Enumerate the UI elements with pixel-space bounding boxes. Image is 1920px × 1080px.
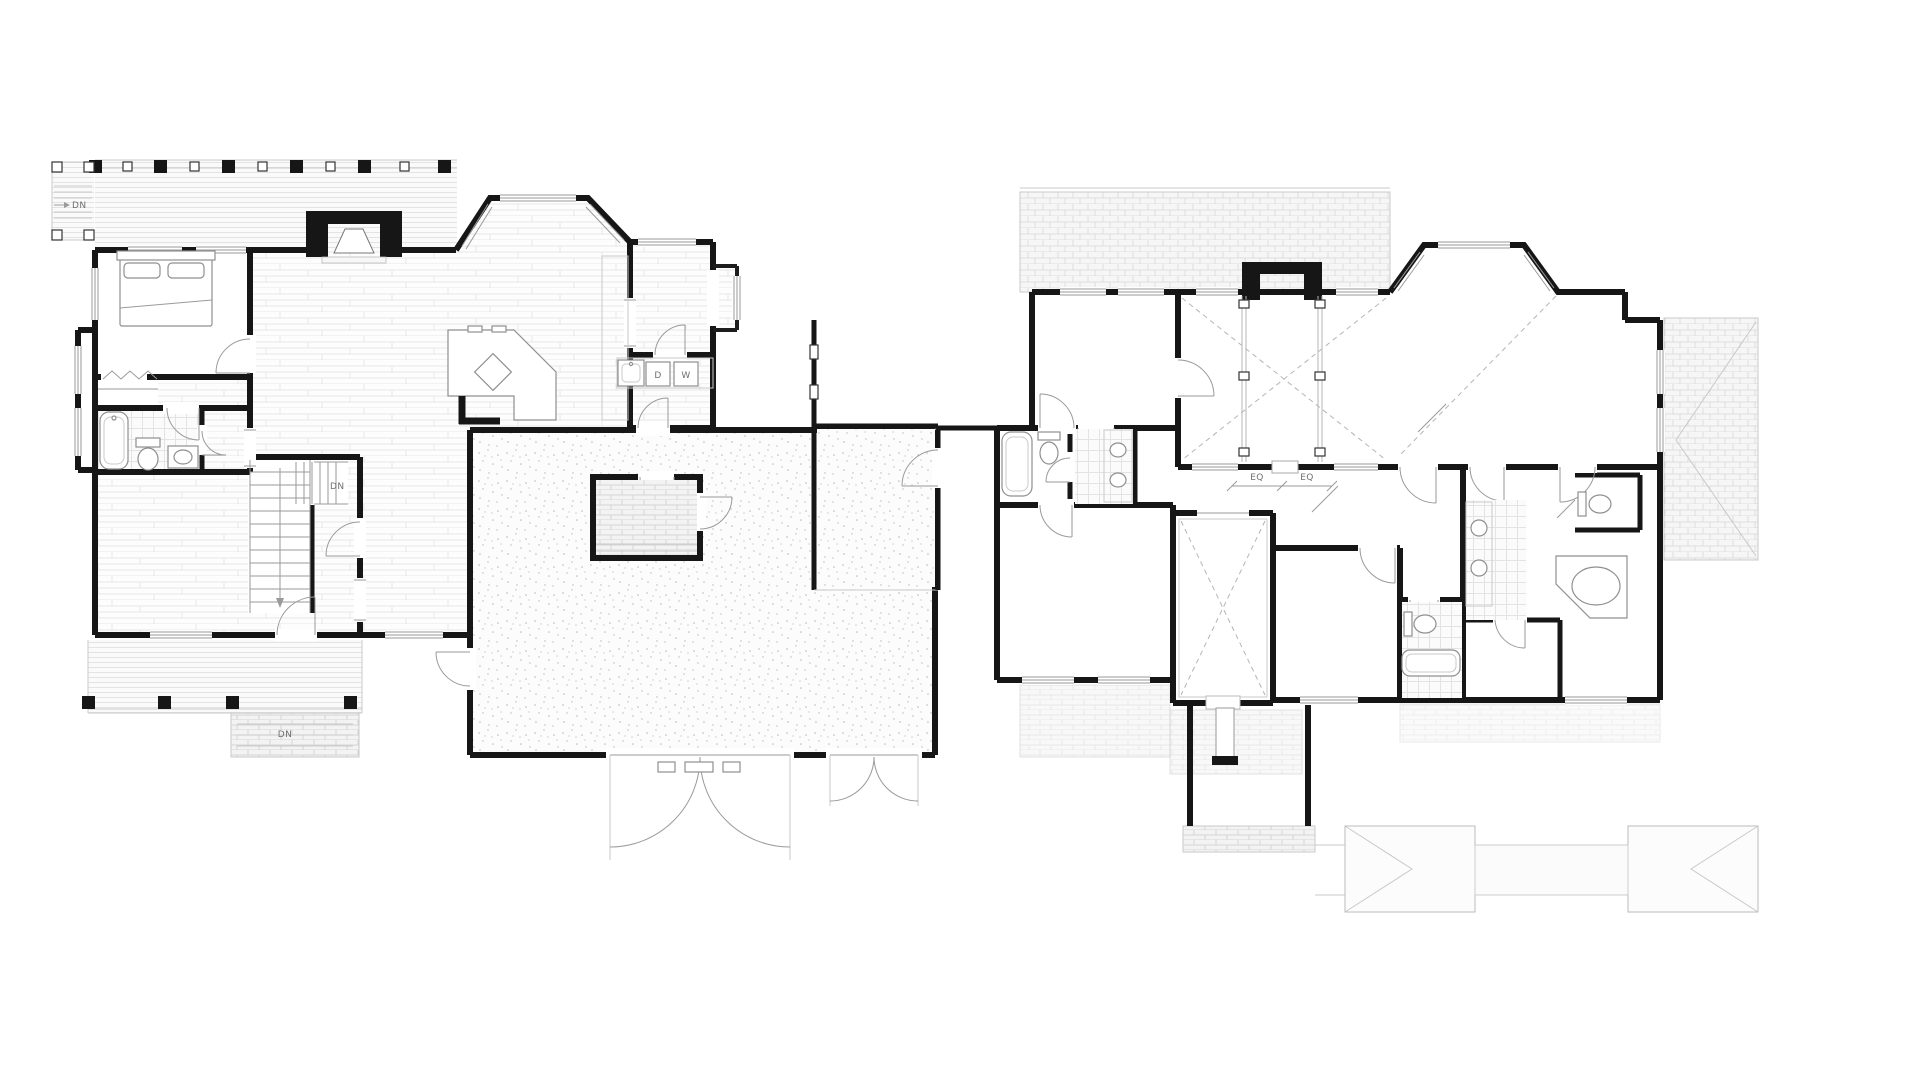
window <box>1192 462 1238 472</box>
floor-plan-drawing: DN <box>0 0 1920 1080</box>
tub-faucet <box>112 416 116 420</box>
window <box>90 268 100 320</box>
sink <box>1110 443 1126 457</box>
porch-roof-left <box>1020 685 1170 757</box>
window <box>1060 287 1106 297</box>
window <box>73 346 83 394</box>
garage-doors <box>610 755 918 860</box>
window <box>385 630 443 640</box>
bed <box>117 251 215 326</box>
window <box>638 237 696 247</box>
tray-center-mark <box>1272 461 1298 473</box>
laundry-sink <box>618 360 644 386</box>
garage-stoop <box>596 480 697 555</box>
first-floor-plan: DN <box>52 160 935 860</box>
rear-eave <box>1400 704 1660 742</box>
extension-roof-cap <box>1183 826 1315 852</box>
corner-tub <box>1556 556 1627 618</box>
porch-post <box>1216 708 1234 758</box>
laundry-room: D W <box>617 358 713 388</box>
label-dryer: D <box>654 371 661 381</box>
front-steps: DN <box>231 713 359 757</box>
top-porch-floor <box>95 160 457 250</box>
window <box>1334 462 1378 472</box>
window <box>1655 408 1665 452</box>
eq-dimension: EQ EQ <box>1227 473 1337 491</box>
window <box>1655 350 1665 394</box>
second-floor-plan: EQ EQ <box>810 188 1758 912</box>
label-dn-stairs: DN <box>330 482 344 492</box>
window <box>1022 675 1074 685</box>
upper-roof <box>1020 192 1390 292</box>
window <box>1565 695 1627 705</box>
front-porch-floor <box>88 640 362 713</box>
window <box>1438 240 1510 250</box>
floor-plan-sheet: DN <box>0 0 1920 1080</box>
window <box>1336 287 1378 297</box>
window <box>1098 675 1150 685</box>
sink <box>1110 473 1126 487</box>
pantry-wing-floor <box>630 242 713 430</box>
rear-roof-band <box>1475 845 1628 895</box>
window <box>150 630 212 640</box>
window <box>1196 287 1238 297</box>
label-dn-front-steps: DN <box>278 730 292 740</box>
window <box>1118 287 1164 297</box>
sink <box>1471 520 1487 536</box>
window <box>73 408 83 456</box>
second-bathroom <box>1402 602 1462 698</box>
niche-door-leaf <box>1557 500 1575 518</box>
window <box>500 193 576 203</box>
window <box>732 276 742 320</box>
label-eq-left: EQ <box>1250 473 1264 483</box>
label-dn-side-porch: DN <box>72 201 86 211</box>
toilet <box>136 438 160 470</box>
sink <box>1471 560 1487 576</box>
bedroom2-ceiling-dash <box>1400 296 1556 455</box>
angled-door-leaves <box>1312 404 1446 512</box>
right-roof <box>1664 318 1758 560</box>
toilet <box>1038 432 1060 464</box>
toilet <box>1578 492 1611 516</box>
vanity-sink <box>168 446 198 468</box>
label-eq-right: EQ <box>1300 473 1314 483</box>
master-bathroom <box>1466 492 1627 620</box>
label-washer: W <box>681 371 690 381</box>
window <box>1300 695 1358 705</box>
